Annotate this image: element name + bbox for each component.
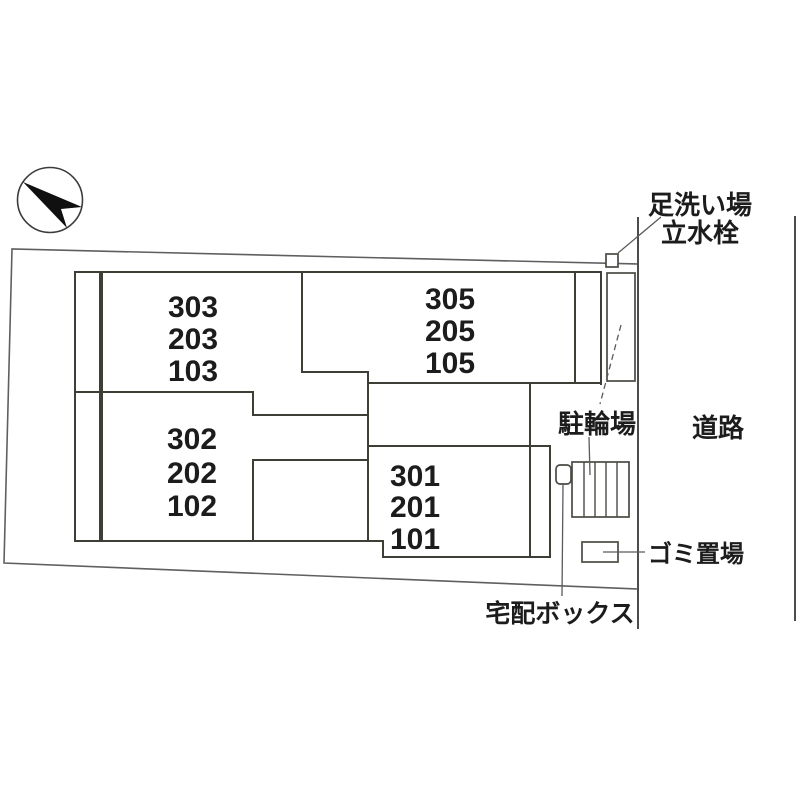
unit-label: 301 xyxy=(390,460,440,493)
delivery-box-leader xyxy=(562,485,563,596)
unit-label: 101 xyxy=(390,523,440,556)
bicycle-rack xyxy=(572,462,629,517)
unit-label: 103 xyxy=(168,355,218,388)
foot-wash-leader xyxy=(618,217,661,253)
foot-wash-label-line2: 立水栓 xyxy=(661,218,739,248)
unit-label: 302 xyxy=(167,423,217,456)
site-plan-drawing: 303 203 103 305 205 105 302 202 102 301 … xyxy=(0,0,800,800)
room-units-301: 301 201 101 xyxy=(390,460,440,556)
unit-label: 305 xyxy=(425,283,475,316)
delivery-box-label: 宅配ボックス xyxy=(485,599,634,628)
site-plan: 303 203 103 305 205 105 302 202 102 301 … xyxy=(0,0,800,800)
garbage-area-label: ゴミ置場 xyxy=(648,540,744,568)
room-units-303: 303 203 103 xyxy=(168,291,218,388)
room-units-305: 305 205 105 xyxy=(425,283,475,380)
bicycle-parking-label: 駐輪場 xyxy=(558,409,636,439)
unit-label: 105 xyxy=(425,347,475,380)
unit-label: 205 xyxy=(425,315,475,348)
foot-wash-label-line1: 足洗い場 xyxy=(648,190,752,220)
unit-label: 201 xyxy=(390,491,440,524)
building-outline xyxy=(75,272,601,557)
delivery-box-marker xyxy=(556,465,571,484)
room-units-302: 302 202 102 xyxy=(167,423,217,523)
unit-label: 303 xyxy=(168,291,218,324)
road-label: 道路 xyxy=(692,413,745,443)
unit-label: 202 xyxy=(167,457,217,490)
unit-label: 203 xyxy=(168,323,218,356)
north-arrow-icon xyxy=(18,168,83,233)
foot-wash-tap-marker xyxy=(606,254,618,267)
unit-label: 102 xyxy=(167,490,217,523)
